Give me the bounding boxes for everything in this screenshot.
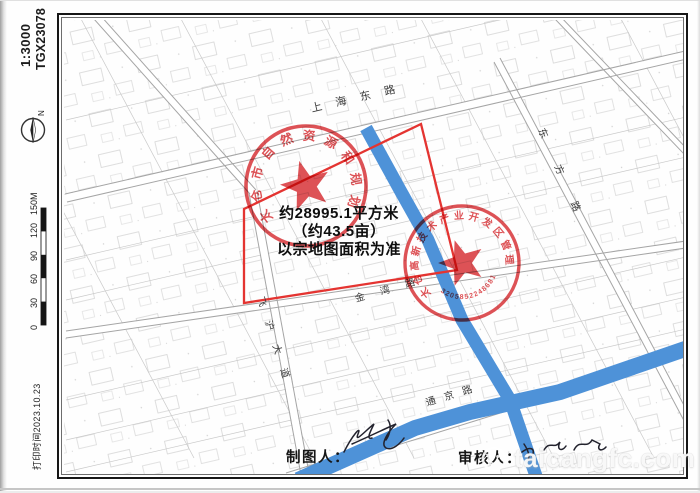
- plot-number: TGX23078: [34, 8, 48, 70]
- scan-edge-left: [0, 0, 7, 493]
- smiley-logo-icon: [479, 444, 509, 474]
- north-compass: N: [22, 110, 47, 143]
- scale-bar-label: 0: [29, 325, 39, 330]
- parcel-area-note: 以宗地图面积为准: [253, 241, 425, 259]
- site-watermark: taicangfc.com: [479, 443, 695, 474]
- parcel-area-sqm: 约28995.1平方米: [253, 205, 425, 223]
- scale-bar: 0 30 60 90 120 150M: [29, 192, 46, 330]
- scale-bar-label: 120: [29, 223, 39, 238]
- scan-edge-bottom: [0, 488, 700, 490]
- cartographer-label: 制图人：: [286, 446, 350, 467]
- parcel-area-annotation: 约28995.1平方米 （约43.5亩） 以宗地图面积为准: [253, 205, 425, 259]
- scan-edge-top: [0, 0, 700, 1]
- scale-bar-label: 150M: [29, 192, 39, 215]
- scale-bar-label: 30: [29, 298, 39, 308]
- map-scale-label: 1:3000: [18, 24, 33, 67]
- watermark-text: taicangfc.com: [514, 443, 695, 474]
- scale-bar-label: 60: [29, 274, 39, 284]
- print-time: 打印时间2023.10.23: [30, 383, 43, 470]
- parcel-area-mu: （约43.5亩）: [253, 223, 425, 241]
- compass-n-label: N: [37, 110, 46, 116]
- scale-bar-label: 90: [29, 251, 39, 261]
